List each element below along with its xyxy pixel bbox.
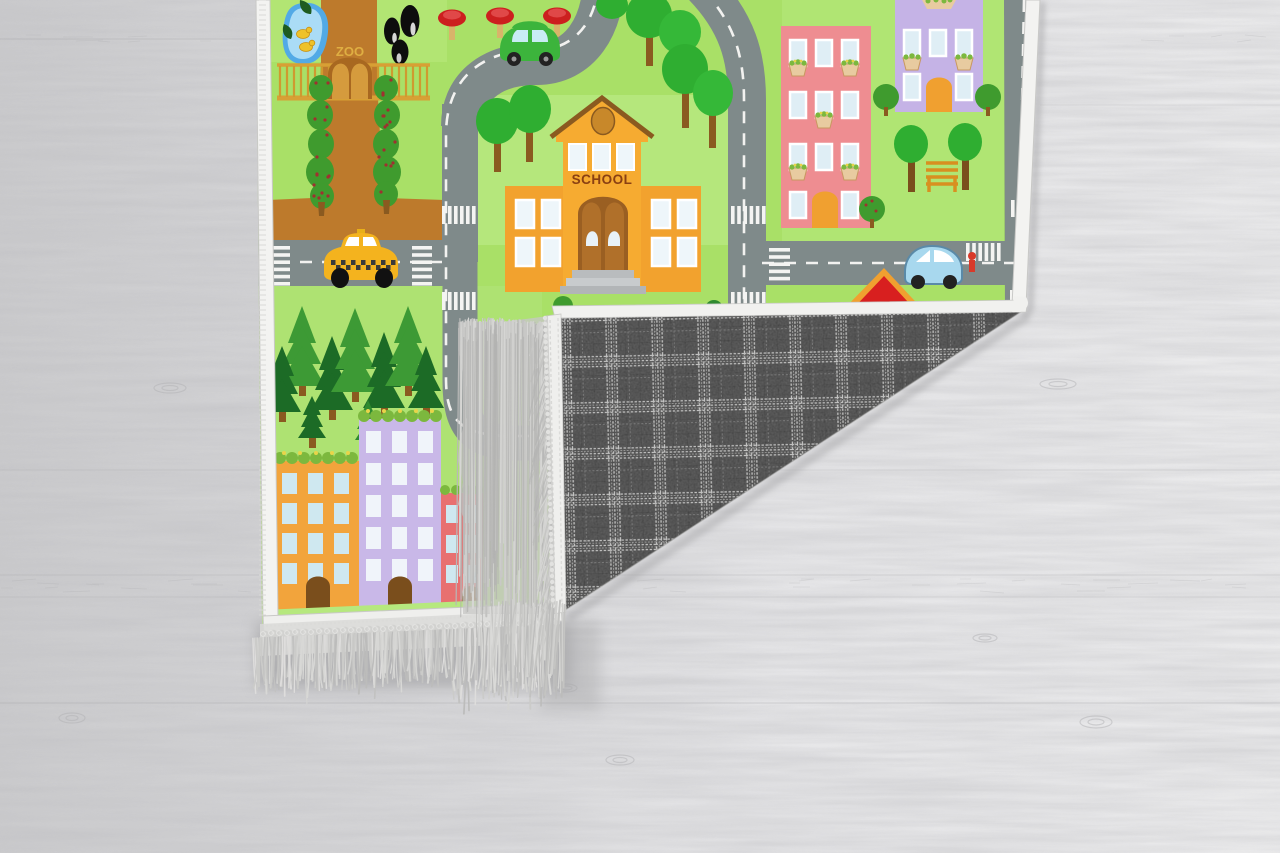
svg-text:ZOO: ZOO xyxy=(336,44,364,59)
svg-text:SCHOOL: SCHOOL xyxy=(572,172,633,187)
